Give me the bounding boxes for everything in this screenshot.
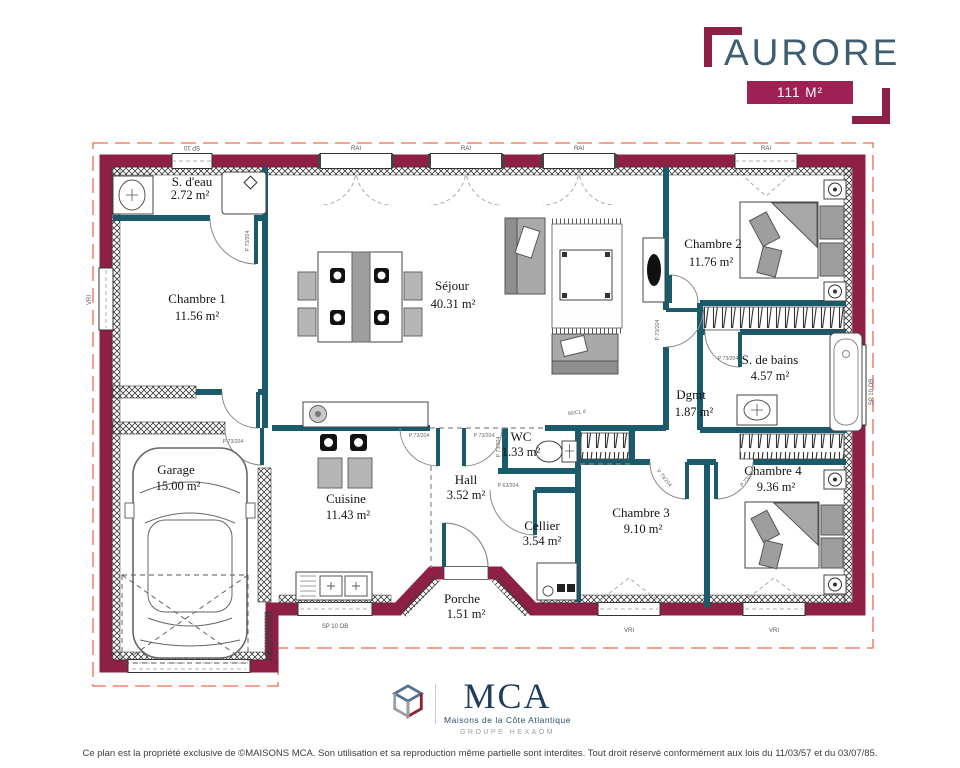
mca-cube-icon <box>389 682 427 726</box>
dining-table-icon <box>298 252 422 342</box>
logo-subtitle: Maisons de la Côte Atlantique <box>444 715 571 725</box>
room-area-sdeau: 2.72 m² <box>171 188 210 202</box>
room-area-dgmt: 1.87 m² <box>675 405 714 419</box>
door-label-p90cl: 90/CL d <box>568 409 587 417</box>
closet-hall <box>581 433 629 459</box>
opening-label-rai: RAI <box>761 146 771 152</box>
washbasin-icon <box>113 176 153 214</box>
closet-chambre2 <box>704 307 844 330</box>
room-label-cellier: Cellier <box>524 518 560 533</box>
opening-label-vri: VRI <box>87 295 93 305</box>
copyright-text: Ce plan est la propriété exclusive de ©M… <box>82 748 877 759</box>
opening-label-vri: VRI <box>624 628 634 634</box>
room-area-cuisine: 11.43 m² <box>326 508 371 522</box>
door-label-p73: P 73/204 <box>474 433 495 439</box>
window-sdeau <box>172 154 212 169</box>
front-door-opening <box>444 567 488 580</box>
room-area-hall: 3.52 m² <box>447 488 486 502</box>
door-label-p73: P 73/204 <box>655 469 673 489</box>
room-label-chambre3: Chambre 3 <box>612 505 669 520</box>
room-label-sdeau: S. d'eau <box>172 174 213 189</box>
room-label-chambre2: Chambre 2 <box>684 236 741 251</box>
bathroom-basin-icon <box>737 395 777 425</box>
room-label-cuisine: Cuisine <box>326 491 366 506</box>
room-label-sdb: S. de bains <box>742 352 799 367</box>
french-door-1 <box>320 154 392 169</box>
french-door-3 <box>543 154 615 169</box>
room-label-sejour: Séjour <box>435 278 470 293</box>
shower-icon <box>222 172 266 214</box>
door-label-p73: P 73/204 <box>718 356 739 362</box>
garage-door <box>128 660 250 673</box>
room-label-hall: Hall <box>455 472 478 487</box>
opening-label-rai: RAI <box>574 146 584 152</box>
toilet-icon <box>536 441 577 462</box>
opening-label-sp10: SP 10 <box>183 144 200 150</box>
stove-icon <box>643 238 665 302</box>
room-label-porche: Porche <box>444 591 480 606</box>
opening-label-rai: RAI <box>351 146 361 152</box>
room-area-chambre4: 9.36 m² <box>757 480 796 494</box>
door-label-p73: P 73/204 <box>496 437 502 458</box>
mca-logo: MCA Maisons de la Côte Atlantique GROUPE… <box>0 678 960 740</box>
floor-plan: S. d'eau 2.72 m² Chambre 1 11.56 m² Séjo… <box>0 0 960 768</box>
door-label-p73: P 73/204 <box>223 439 244 445</box>
logo-divider <box>435 684 436 724</box>
nightstand-lamp-icon <box>824 180 846 301</box>
room-area-wc: 1.33 m² <box>502 445 541 459</box>
room-area-chambre2: 11.76 m² <box>689 255 734 269</box>
opening-label-sp10ob: SP 10 OB <box>869 379 875 406</box>
door-label-p73: P 73/204 <box>245 231 251 252</box>
room-area-chambre1: 11.56 m² <box>175 309 220 323</box>
room-area-chambre3: 9.10 m² <box>624 522 663 536</box>
door-label-p73: P 73/204 <box>409 433 430 439</box>
room-area-sdb: 4.57 m² <box>751 369 790 383</box>
furniture <box>113 172 862 663</box>
copyright-footer: Ce plan est la propriété exclusive de ©M… <box>0 748 960 759</box>
opening-label-vri: VRI <box>769 628 779 634</box>
logo-group-name: GROUPE HEXAÖM <box>460 729 555 736</box>
closet-chambre4 <box>740 434 844 459</box>
bathtub-icon <box>830 333 862 431</box>
opening-label-rai: RAI <box>461 146 471 152</box>
room-label-chambre1: Chambre 1 <box>168 291 225 306</box>
room-area-sejour: 40.31 m² <box>431 297 476 311</box>
logo-wordmark: MCA <box>463 678 551 714</box>
kitchen-bar-icon <box>303 402 428 488</box>
room-area-cellier: 3.54 m² <box>523 534 562 548</box>
rug-icon <box>552 221 622 331</box>
opening-label-sp10ob: SP 10 OB <box>322 624 349 630</box>
door-label-p73: P 73/204 <box>655 320 661 341</box>
room-area-garage: 15.00 m² <box>156 479 201 493</box>
french-door-2 <box>430 154 502 169</box>
coffee-table-icon <box>560 250 612 300</box>
room-area-porche: 1.51 m² <box>447 607 486 621</box>
room-label-dgmt: Dgmt <box>676 387 706 402</box>
room-label-wc: WC <box>511 429 532 444</box>
bed-icon <box>740 180 846 301</box>
kitchen-sink-icon <box>296 572 372 600</box>
door-label-p63: P 63/204 <box>498 483 519 489</box>
washing-machine-icon <box>537 563 577 600</box>
doors <box>210 218 753 580</box>
room-label-garage: Garage <box>157 462 195 477</box>
